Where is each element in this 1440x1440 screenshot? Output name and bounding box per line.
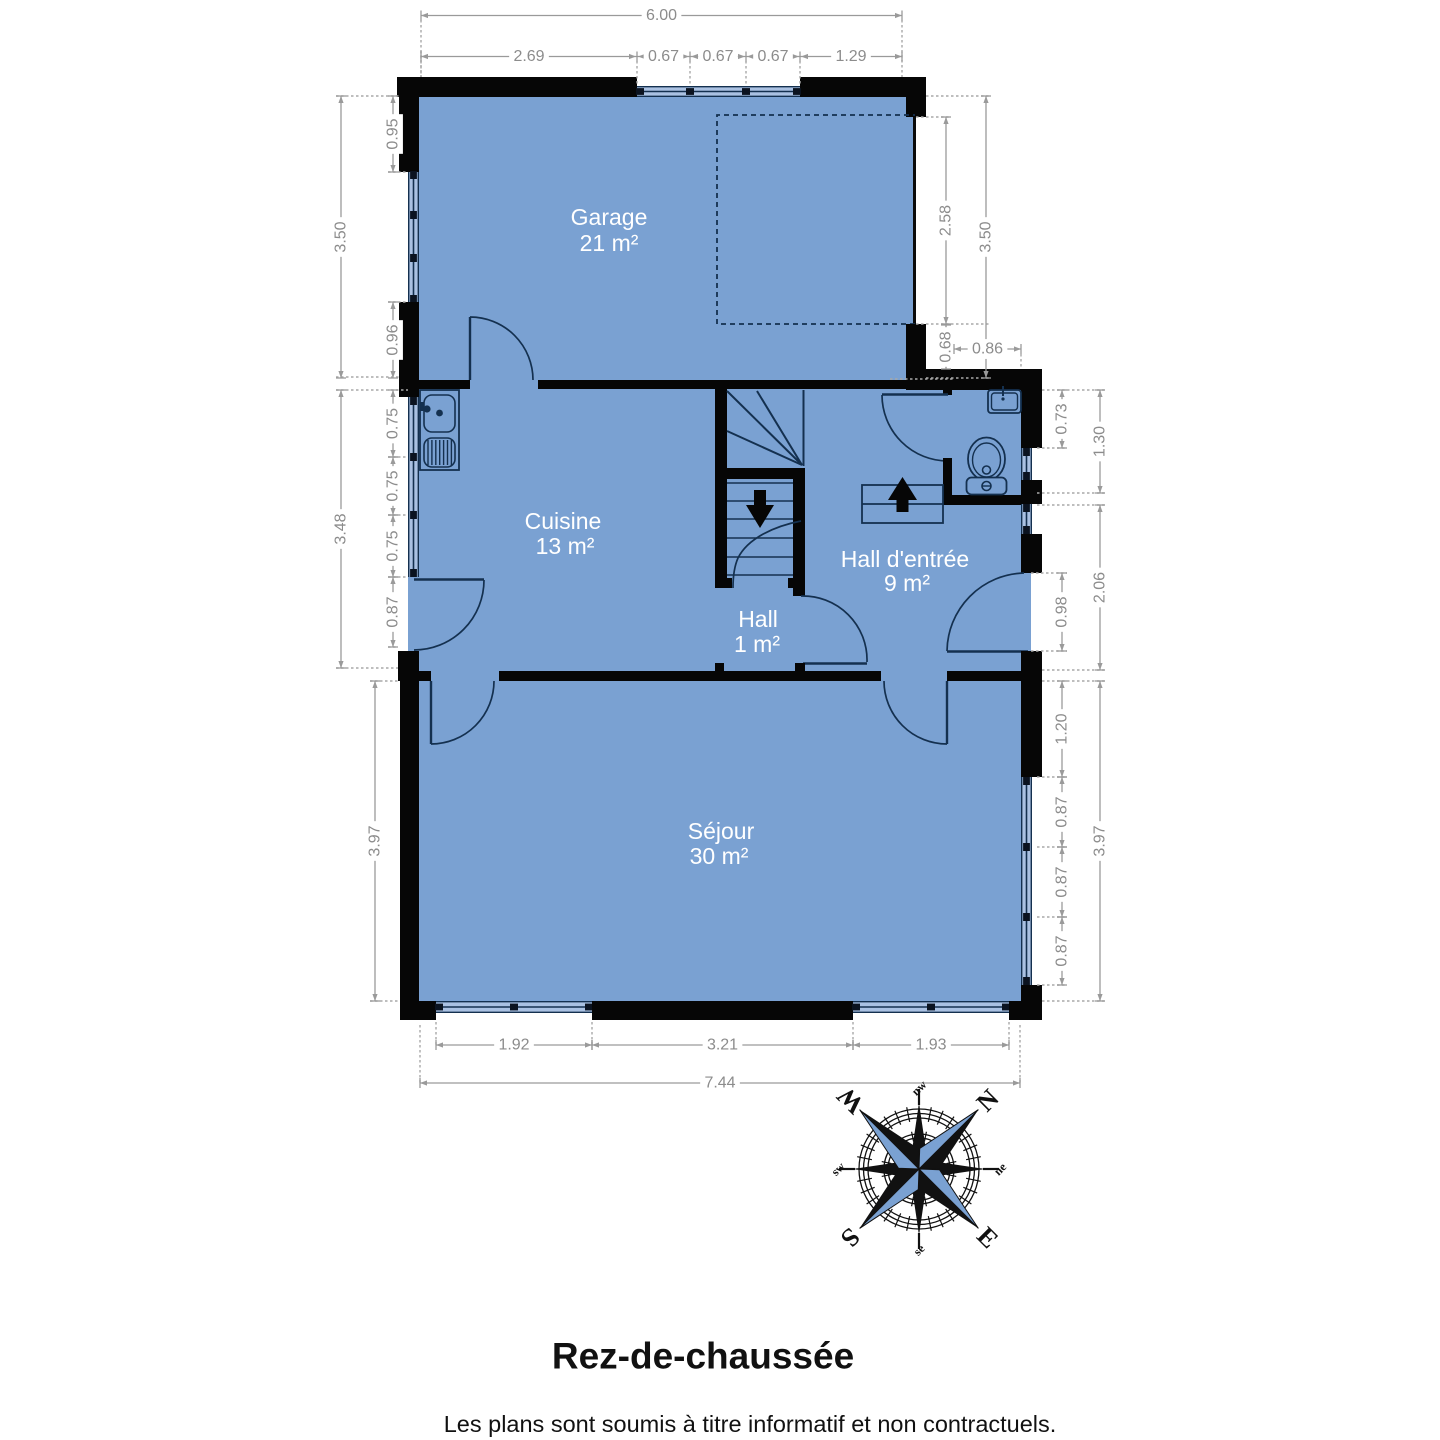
svg-text:2.69: 2.69: [513, 48, 544, 65]
svg-text:21 m²: 21 m²: [580, 230, 639, 256]
svg-text:0.87: 0.87: [385, 596, 402, 627]
svg-text:0.67: 0.67: [757, 48, 788, 65]
svg-text:13 m²: 13 m²: [536, 533, 595, 559]
svg-text:0.75: 0.75: [385, 408, 402, 439]
svg-text:sw: sw: [828, 1159, 848, 1179]
svg-text:Hall d'entrée: Hall d'entrée: [841, 546, 969, 572]
svg-text:9 m²: 9 m²: [884, 570, 930, 596]
svg-text:3.97: 3.97: [1092, 825, 1109, 856]
svg-text:Séjour: Séjour: [688, 818, 755, 844]
svg-text:Cuisine: Cuisine: [525, 508, 602, 534]
svg-text:3.50: 3.50: [333, 221, 350, 252]
svg-text:6.00: 6.00: [646, 7, 677, 24]
svg-text:0.75: 0.75: [385, 530, 402, 561]
svg-text:Hall: Hall: [738, 606, 778, 632]
svg-text:2.06: 2.06: [1092, 572, 1109, 603]
svg-text:se: se: [911, 1241, 928, 1258]
svg-text:1.92: 1.92: [498, 1037, 529, 1054]
svg-text:0.67: 0.67: [648, 48, 679, 65]
svg-text:0.86: 0.86: [972, 341, 1003, 358]
svg-text:nw: nw: [909, 1077, 930, 1098]
svg-text:1.29: 1.29: [835, 48, 866, 65]
svg-text:3.48: 3.48: [333, 513, 350, 544]
svg-text:0.95: 0.95: [385, 118, 402, 149]
svg-text:0.67: 0.67: [702, 48, 733, 65]
svg-text:3.97: 3.97: [367, 825, 384, 856]
svg-text:Rez-de-chaussée: Rez-de-chaussée: [552, 1336, 854, 1377]
svg-text:1 m²: 1 m²: [734, 631, 780, 657]
svg-text:0.96: 0.96: [385, 324, 402, 355]
svg-text:3.50: 3.50: [978, 221, 995, 252]
svg-text:30 m²: 30 m²: [690, 843, 749, 869]
svg-text:0.87: 0.87: [1054, 866, 1071, 897]
svg-text:0.98: 0.98: [1054, 596, 1071, 627]
svg-text:0.75: 0.75: [385, 470, 402, 501]
svg-text:2.58: 2.58: [938, 205, 955, 236]
svg-text:1.93: 1.93: [915, 1037, 946, 1054]
svg-text:7.44: 7.44: [704, 1075, 735, 1092]
svg-text:Les plans sont soumis à titre: Les plans sont soumis à titre informatif…: [444, 1411, 1057, 1437]
svg-text:0.87: 0.87: [1054, 935, 1071, 966]
svg-text:1.30: 1.30: [1092, 426, 1109, 457]
svg-text:0.87: 0.87: [1054, 796, 1071, 827]
svg-text:3.21: 3.21: [707, 1037, 738, 1054]
svg-text:1.20: 1.20: [1054, 713, 1071, 744]
svg-text:0.73: 0.73: [1054, 403, 1071, 434]
svg-text:0.68: 0.68: [938, 331, 955, 362]
svg-text:ne: ne: [991, 1159, 1010, 1178]
svg-text:Garage: Garage: [571, 204, 648, 230]
